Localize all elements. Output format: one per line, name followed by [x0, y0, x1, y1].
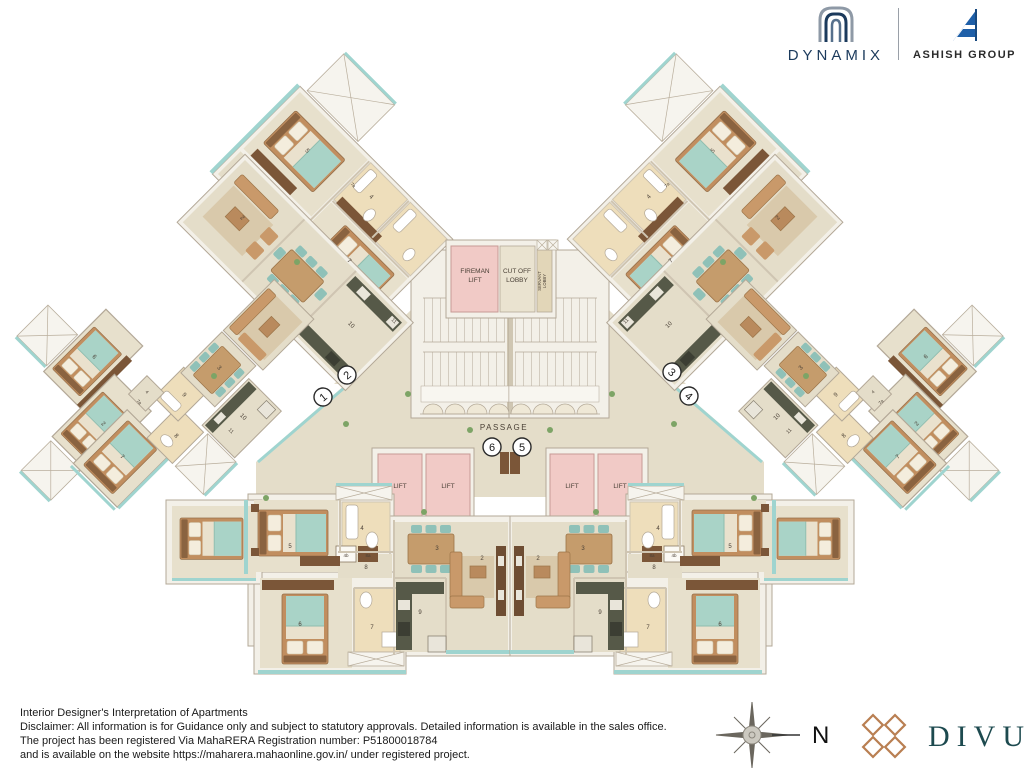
plan-label: PASSAGE: [480, 423, 528, 432]
floor-plan-page: FIREMANLIFTCUT OFFLOBBYSERVANTLOBBYPASSA…: [0, 0, 1024, 769]
floor-plan: FIREMANLIFTCUT OFFLOBBYSERVANTLOBBYPASSA…: [0, 0, 1024, 769]
brand-bar: DYNAMIX ASHISH GROUP: [788, 4, 1016, 64]
plan-label: 4b: [343, 553, 349, 558]
footer-line-3: The project has been registered Via Maha…: [20, 734, 667, 748]
footer-line-2: Disclaimer: All information is for Guida…: [20, 720, 667, 734]
ashish-group-brand-name: ASHISH GROUP: [913, 49, 1016, 61]
divum-brand-name: DIVUM: [928, 720, 1024, 754]
plan-label: LIFT: [468, 277, 481, 284]
plan-label: LOBBY: [506, 277, 528, 284]
plan-label: LIFT: [441, 483, 454, 490]
dynamix-brand: DYNAMIX: [788, 4, 884, 64]
divum-brand: DIVUM: [856, 712, 1024, 762]
plan-label: 4b: [671, 553, 677, 558]
dynamix-brand-name: DYNAMIX: [788, 47, 884, 64]
plan-label: 8a: [365, 553, 371, 558]
brand-divider: [898, 8, 899, 60]
plan-right-half: [509, 43, 1024, 674]
plan-label: LIFT: [565, 483, 578, 490]
disclaimer-text: Interior Designer's Interpretation of Ap…: [20, 706, 667, 762]
divum-logo-icon: [856, 712, 914, 762]
plan-label: LIFT: [613, 483, 626, 490]
dynamix-logo-icon: [814, 4, 858, 44]
ashish-group-logo-icon: [945, 7, 985, 45]
plan-label: 8a: [649, 553, 655, 558]
plan-label: LOBBY: [542, 274, 547, 288]
circled-number: 5: [513, 438, 531, 456]
compass-north-label: N: [812, 722, 829, 749]
svg-text:6: 6: [489, 442, 495, 454]
plan-label: LIFT: [393, 483, 406, 490]
plan-label: CUT OFF: [503, 268, 531, 275]
footer-line-1: Interior Designer's Interpretation of Ap…: [20, 706, 667, 720]
compass-icon: N: [712, 698, 842, 770]
footer-line-4: and is available on the website https://…: [20, 748, 667, 762]
circled-number: 6: [483, 438, 501, 456]
ashish-group-brand: ASHISH GROUP: [913, 7, 1016, 61]
plan-label: FIREMAN: [460, 268, 490, 275]
svg-text:5: 5: [519, 442, 525, 454]
plan-left-half: [0, 43, 511, 674]
